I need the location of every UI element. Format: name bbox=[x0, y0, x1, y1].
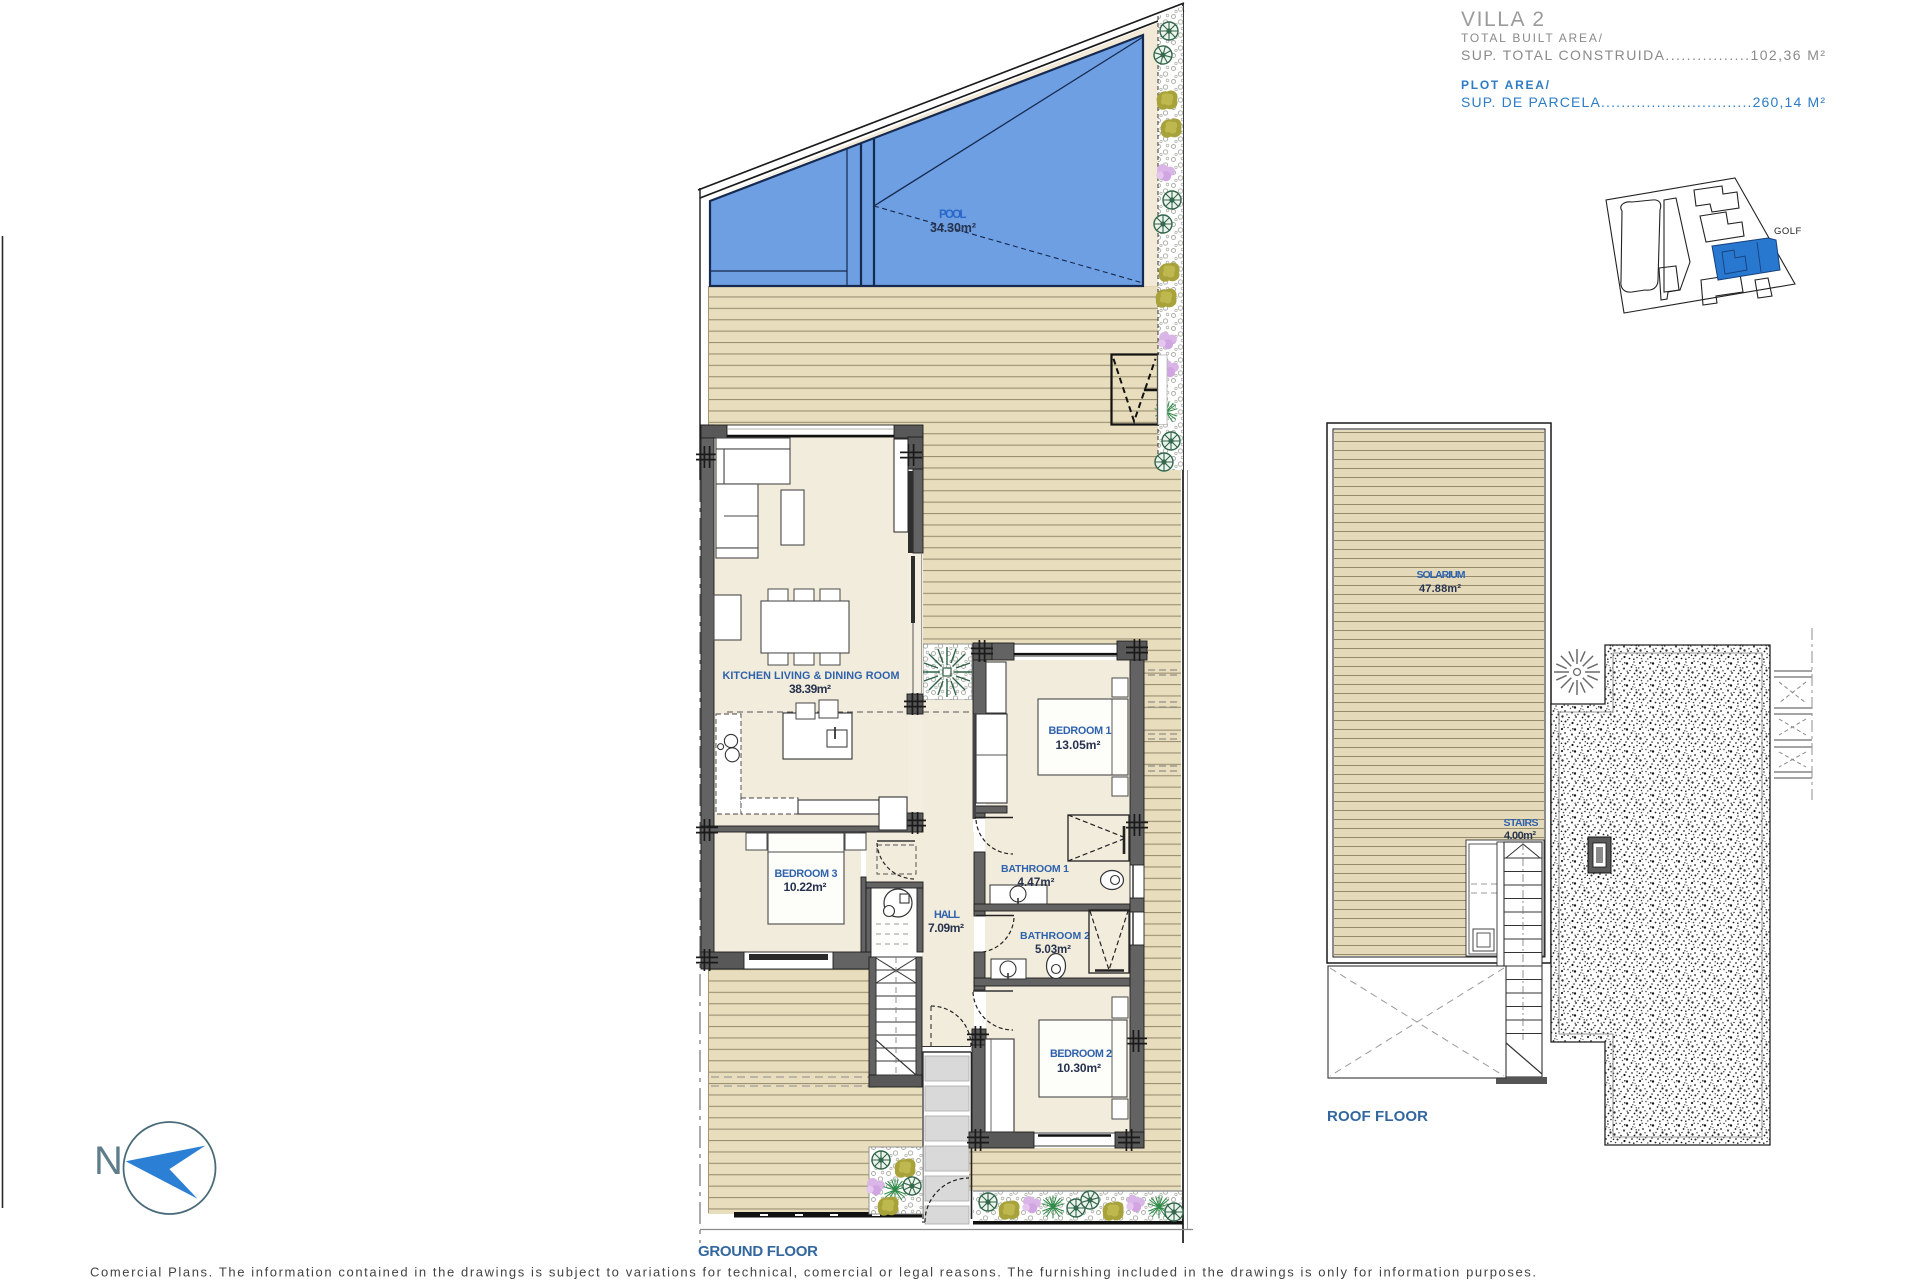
svg-text:47.88m²: 47.88m² bbox=[1419, 583, 1461, 595]
svg-text:BATHROOM 2: BATHROOM 2 bbox=[1020, 930, 1090, 942]
svg-text:SUP. TOTAL CONSTRUIDA.........: SUP. TOTAL CONSTRUIDA................102… bbox=[1461, 47, 1825, 63]
svg-text:GROUND FLOOR: GROUND FLOOR bbox=[698, 1243, 818, 1260]
svg-text:4.47m²: 4.47m² bbox=[1018, 877, 1055, 889]
svg-text:BEDROOM 3: BEDROOM 3 bbox=[775, 868, 838, 880]
svg-text:ROOF FLOOR: ROOF FLOOR bbox=[1327, 1108, 1428, 1125]
svg-text:SUP. DE PARCELA...............: SUP. DE PARCELA.........................… bbox=[1461, 94, 1825, 110]
svg-text:GOLF: GOLF bbox=[1774, 226, 1802, 237]
svg-text:34.30m²: 34.30m² bbox=[930, 221, 976, 235]
svg-text:BEDROOM 1: BEDROOM 1 bbox=[1049, 725, 1112, 737]
svg-text:STAIRS: STAIRS bbox=[1504, 817, 1539, 829]
svg-text:VILLA 2: VILLA 2 bbox=[1461, 8, 1546, 31]
svg-text:KITCHEN LIVING & DINING R: KITCHEN LIVING & DINING ROOM bbox=[723, 670, 900, 682]
svg-text:7.09m²: 7.09m² bbox=[928, 921, 964, 935]
svg-text:BATHROOM 1: BATHROOM 1 bbox=[1001, 863, 1069, 875]
svg-text:TOTAL BUILT AREA/: TOTAL BUILT AREA/ bbox=[1461, 31, 1603, 45]
svg-text:Comercial Plans. The inform: Comercial Plans. The information contain… bbox=[90, 1265, 1536, 1280]
svg-text:N: N bbox=[94, 1139, 123, 1183]
svg-text:10.30m²: 10.30m² bbox=[1057, 1061, 1101, 1075]
svg-text:BEDROOM 2: BEDROOM 2 bbox=[1050, 1048, 1112, 1060]
svg-text:POOL: POOL bbox=[939, 209, 967, 221]
svg-text:38.39m²: 38.39m² bbox=[789, 682, 831, 696]
svg-text:4.00m²: 4.00m² bbox=[1504, 830, 1536, 842]
svg-text:SOLARIUM: SOLARIUM bbox=[1417, 569, 1466, 581]
svg-text:10.22m²: 10.22m² bbox=[784, 880, 827, 894]
svg-text:13.05m²: 13.05m² bbox=[1056, 738, 1101, 752]
svg-text:PLOT AREA/: PLOT AREA/ bbox=[1461, 78, 1550, 92]
svg-text:HALL: HALL bbox=[934, 909, 960, 921]
